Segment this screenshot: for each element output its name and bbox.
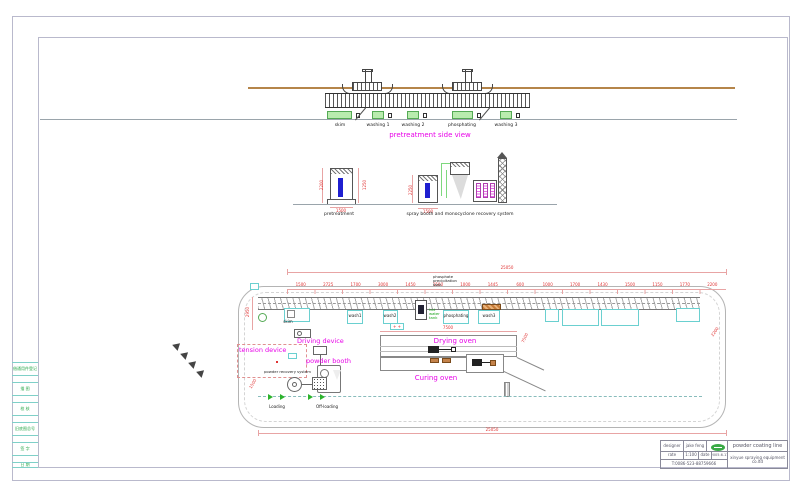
tension-device-part <box>288 353 297 359</box>
filter-cartridge <box>483 183 488 198</box>
tank-washing2 <box>407 111 419 119</box>
tank-label-washing2: washing 2 <box>402 123 425 128</box>
burner-head-1 <box>451 347 456 352</box>
oven-stack-hatch <box>504 382 510 397</box>
revision-strip: 借通用件登记 描 图 校 核 旧底图总号 签 字 日 期 <box>12 362 38 468</box>
tank-label-washing1: washing 1 <box>367 123 390 128</box>
dim-tick <box>258 430 259 436</box>
pump-icon <box>388 113 392 118</box>
dim-text: 1700 <box>342 282 369 287</box>
plan-oven-entry-block <box>482 304 501 310</box>
tank-phosphating <box>452 111 473 119</box>
dim-text: 2725 <box>314 282 341 287</box>
booth-feeder-box <box>313 346 327 355</box>
plan-tank-extra2 <box>562 309 599 326</box>
hot-water-line3: tank <box>429 316 440 320</box>
strip-cell: 旧底图总号 <box>12 422 38 435</box>
tension-device-label: tension device <box>239 347 286 354</box>
flow-arrow-green-icon <box>280 394 285 400</box>
exhaust-fan-box <box>452 82 482 91</box>
skim-pump-box <box>287 310 295 318</box>
hot-water-note: hot water tank <box>429 308 440 321</box>
exhaust-chimney <box>498 158 507 203</box>
strip-cell-blank <box>12 415 38 422</box>
dim-text: 1250 <box>363 180 367 190</box>
ground-line <box>40 119 737 120</box>
recovery-filter-box <box>312 377 327 390</box>
phone-cell: T:0086-523-88759666 <box>660 459 728 469</box>
flow-arrow-green-icon <box>308 394 313 400</box>
dim-tick <box>726 430 727 436</box>
exhaust-fan-box <box>352 82 382 91</box>
driving-device-label: Driving device <box>297 338 344 345</box>
fan-symbol <box>258 313 267 322</box>
tank-washing3 <box>500 111 512 119</box>
dim-text: 2250 <box>409 185 413 195</box>
pretreatment-elevation-label: pretreatment <box>324 212 354 217</box>
heater-block <box>430 358 439 363</box>
dim-text: 1770 <box>671 282 698 287</box>
flow-arrow-green-icon <box>268 394 273 400</box>
burner-shaft-1 <box>439 349 451 350</box>
tank-label-skim: skim <box>335 123 346 128</box>
dim-line <box>358 168 359 203</box>
strip-cell-blank <box>12 395 38 402</box>
overall-dim-text-top: 25050 <box>501 266 514 270</box>
tank-label-washing3: washing 3 <box>495 123 518 128</box>
plan-tank-extra1 <box>545 309 559 322</box>
dim-tick <box>726 269 727 275</box>
dim-text: 1150 <box>644 282 671 287</box>
pretreatment-tunnel-band <box>325 93 530 108</box>
burner-motor-2 <box>472 359 482 366</box>
strip-cell: 校 核 <box>12 402 38 415</box>
spray-booth-roof-hatch <box>419 176 437 181</box>
tension-device-mark <box>276 361 278 363</box>
powder-booth-label: powder booth <box>306 358 351 365</box>
dim-text: 1500 <box>616 282 643 287</box>
company-name-cell: xinyue spraying equipment co.ltd <box>727 451 788 469</box>
small-tank-symbol <box>250 283 259 290</box>
oven-dim-text: 7500 <box>443 326 453 330</box>
plan-label-wash2: wash2 <box>384 313 397 318</box>
dim-text: 2200 <box>699 282 726 287</box>
dim-text: 2950 <box>246 307 250 317</box>
recovery-duct-line <box>302 384 312 385</box>
phosphate-note: phosphate precipitation tank <box>433 275 457 288</box>
strip-cell: 借通用件登记 <box>12 362 38 375</box>
tank-washing1 <box>372 111 384 119</box>
dim-text: 1500 <box>287 282 314 287</box>
overall-dim-line-top <box>287 272 726 273</box>
filter-cartridge <box>490 183 495 198</box>
elevation-ground-line <box>293 204 557 205</box>
plan-label-skim: skim <box>283 319 292 324</box>
chimney-arrow-icon <box>497 152 507 158</box>
filter-cartridge <box>476 183 481 198</box>
segment-dim-row: 1500 2725 1700 3000 1450 1500 1000 1445 … <box>287 282 726 287</box>
dim-line-left <box>252 297 253 330</box>
exhaust-cap <box>462 69 473 72</box>
phosphate-note-line3: tank <box>433 283 457 287</box>
heater-block <box>490 360 496 366</box>
drawing-sheet: skim washing 1 washing 2 phosphating was… <box>0 0 800 493</box>
company-logo-dash <box>714 447 722 448</box>
plan-label-wash1: wash1 <box>349 313 362 318</box>
plan-tank-extra4 <box>676 308 700 322</box>
driving-device-wheel <box>297 331 302 336</box>
recovery-pipe-vertical2 <box>446 170 447 198</box>
strip-cell: 签 字 <box>12 442 38 455</box>
exhaust-cap <box>362 69 373 72</box>
pump-icon <box>516 113 520 118</box>
powder-recovery-label: powder recovery system <box>264 370 311 374</box>
burner-motor-1 <box>428 346 439 353</box>
dim-text: 1450 <box>397 282 424 287</box>
flow-arrow-green-icon <box>320 394 325 400</box>
plan-label-wash3: wash3 <box>483 313 496 318</box>
strip-cell-blank <box>12 435 38 442</box>
plan-conveyor-chain <box>258 303 700 305</box>
oven-rail-line <box>380 351 517 352</box>
pump-icon <box>423 113 427 118</box>
plan-mid-device-core <box>418 305 424 314</box>
dim-text: 2200 <box>320 180 324 190</box>
segment-dim-line <box>287 289 726 294</box>
plan-tank-extra3 <box>601 309 639 326</box>
recovery-pipe-vertical <box>441 163 442 196</box>
spray-booth-liquid-bar <box>425 183 430 198</box>
booth-elevation-label: spray booth and monocyclone recovery sys… <box>406 212 513 217</box>
overall-dim-line-bottom <box>258 433 726 434</box>
strip-cell: 日 期 <box>12 462 38 468</box>
oven-rail-line <box>380 346 517 347</box>
overall-dim-text-bottom: 25050 <box>486 428 499 432</box>
dim-tick <box>287 269 288 275</box>
recovery-fan-hub <box>292 382 297 387</box>
tank-skim <box>327 111 352 119</box>
strip-cell: 描 图 <box>12 382 38 395</box>
dim-text: 1430 <box>589 282 616 287</box>
exhaust-assembly-right <box>440 70 494 93</box>
pretreatment-roof-hatch <box>331 169 352 174</box>
dim-text: 3000 <box>369 282 396 287</box>
plan-label-phosphating: phosphating <box>444 313 469 318</box>
dim-text: 600 <box>507 282 534 287</box>
dim-text: 1700 <box>561 282 588 287</box>
strip-cell-blank <box>12 455 38 462</box>
side-view-title: pretreatment side view <box>389 132 471 139</box>
cyclone-hatch <box>451 163 469 167</box>
title-block: designer jake feng powder coating line r… <box>660 440 788 469</box>
pretreatment-liquid-bar <box>338 178 343 197</box>
dim-text: 1000 <box>534 282 561 287</box>
drying-oven-label: Drying oven <box>434 338 477 345</box>
exhaust-assembly-left <box>340 70 394 93</box>
loading-label: Loading <box>269 404 285 409</box>
offloading-label: Off-loading <box>316 404 338 409</box>
dim-text: 1445 <box>479 282 506 287</box>
tank-label-phosphating: phosphating <box>448 123 476 128</box>
burner-shaft-2 <box>482 362 490 363</box>
heater-block <box>442 358 451 363</box>
curing-oven-label: Curing oven <box>415 375 457 382</box>
strip-cell-blank <box>12 375 38 382</box>
pump-plus-box: + + <box>390 323 404 330</box>
oven-dim-line <box>380 331 517 332</box>
